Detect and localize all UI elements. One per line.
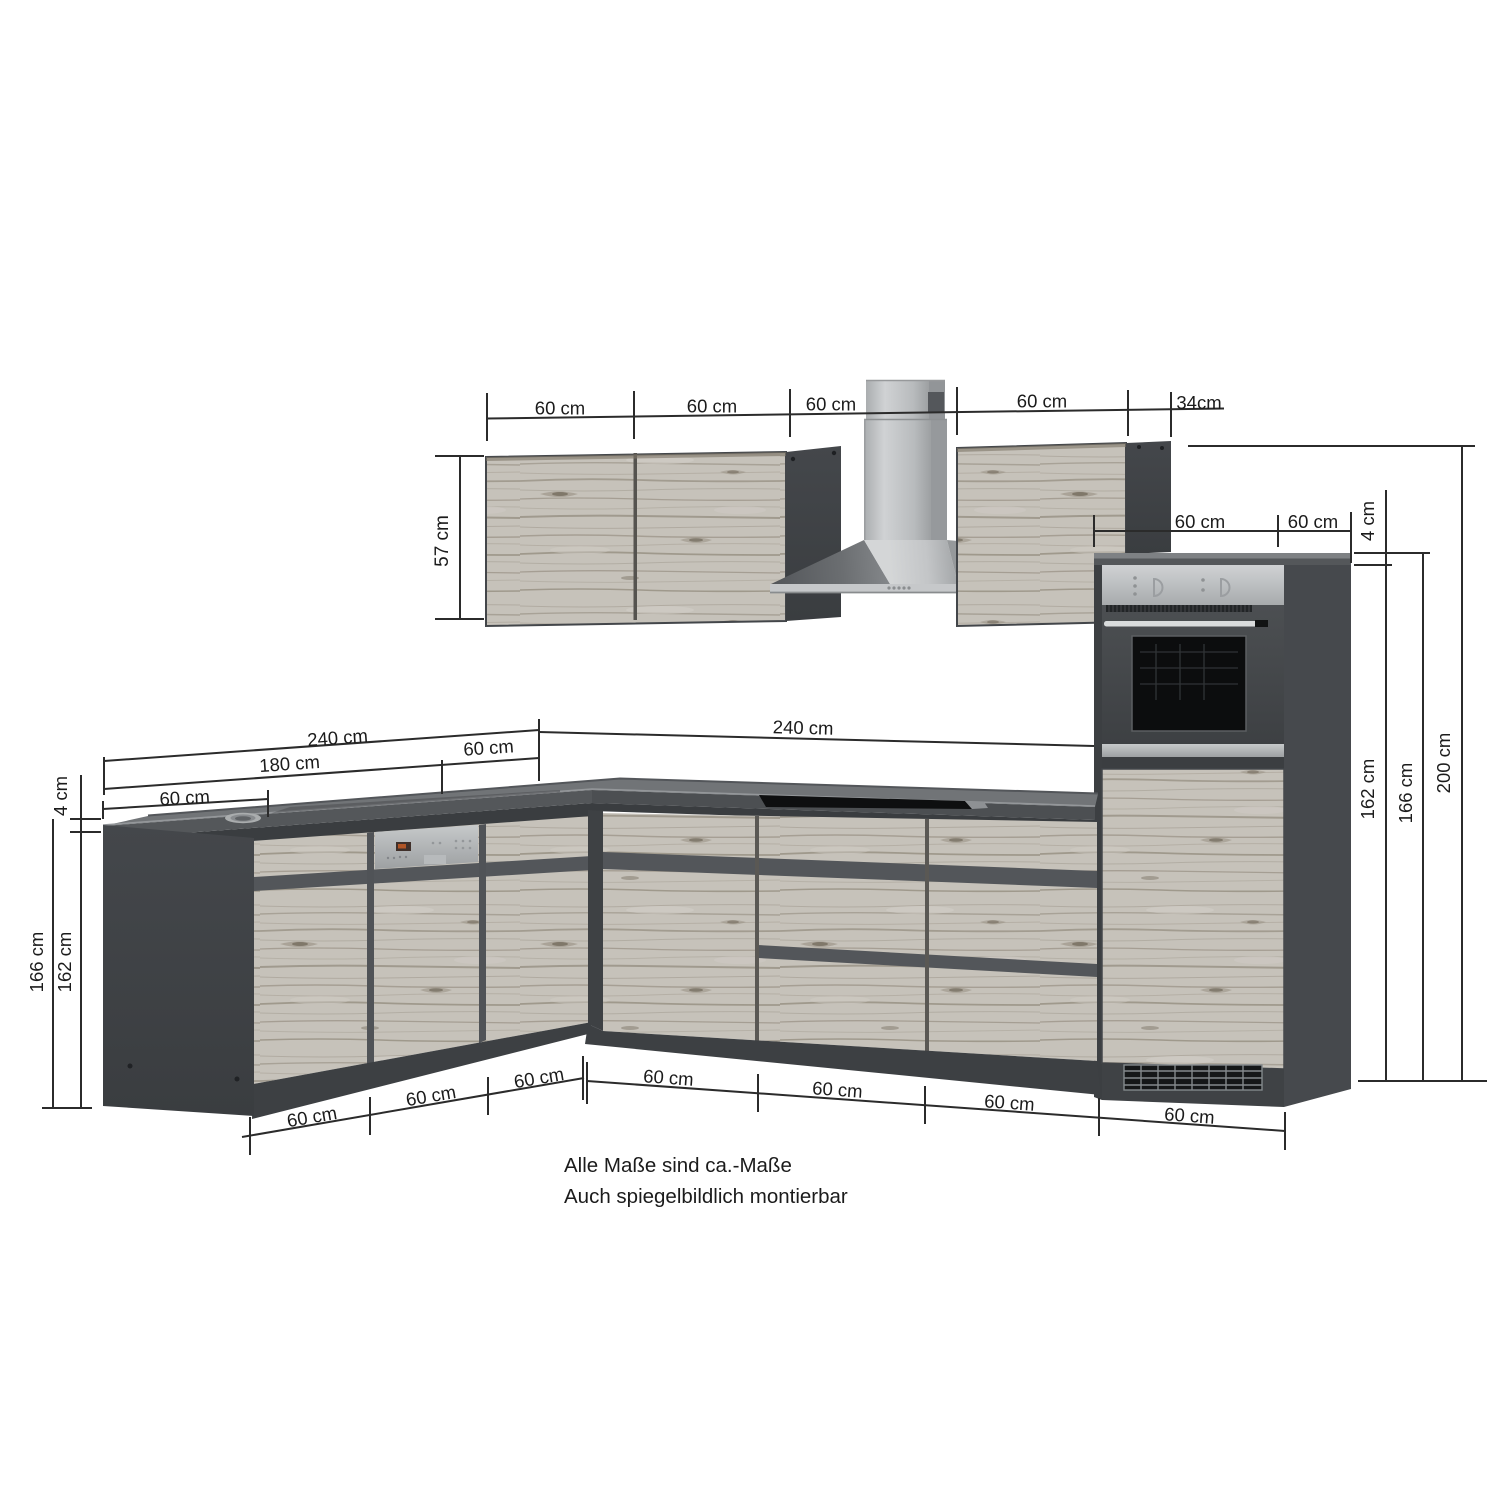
svg-text:57 cm: 57 cm (432, 515, 453, 567)
svg-text:60 cm: 60 cm (159, 786, 210, 810)
svg-text:4 cm: 4 cm (50, 776, 71, 816)
svg-text:60 cm: 60 cm (1017, 391, 1067, 412)
svg-text:60 cm: 60 cm (812, 1077, 864, 1102)
svg-text:60 cm: 60 cm (1175, 511, 1225, 532)
svg-text:60 cm: 60 cm (463, 735, 515, 759)
svg-text:240 cm: 240 cm (307, 725, 369, 750)
svg-text:60 cm: 60 cm (1288, 511, 1338, 532)
svg-text:60 cm: 60 cm (535, 398, 585, 419)
svg-text:60 cm: 60 cm (1164, 1103, 1216, 1128)
svg-text:166 cm: 166 cm (26, 932, 47, 993)
svg-text:162 cm: 162 cm (1357, 759, 1378, 820)
svg-text:34cm: 34cm (1176, 392, 1221, 413)
svg-text:60 cm: 60 cm (806, 394, 856, 415)
svg-text:60 cm: 60 cm (643, 1065, 695, 1090)
svg-text:162 cm: 162 cm (54, 932, 75, 993)
svg-text:166 cm: 166 cm (1395, 763, 1416, 824)
svg-text:180 cm: 180 cm (259, 751, 321, 776)
svg-text:200 cm: 200 cm (1433, 733, 1454, 794)
svg-text:60 cm: 60 cm (687, 396, 737, 417)
svg-text:Alle Maße sind ca.-Maße: Alle Maße sind ca.-Maße (564, 1154, 792, 1177)
svg-text:240 cm: 240 cm (773, 716, 834, 738)
svg-text:Auch spiegelbildlich montierba: Auch spiegelbildlich montierbar (564, 1185, 848, 1208)
svg-text:60 cm: 60 cm (984, 1090, 1036, 1115)
svg-text:4 cm: 4 cm (1357, 501, 1378, 541)
